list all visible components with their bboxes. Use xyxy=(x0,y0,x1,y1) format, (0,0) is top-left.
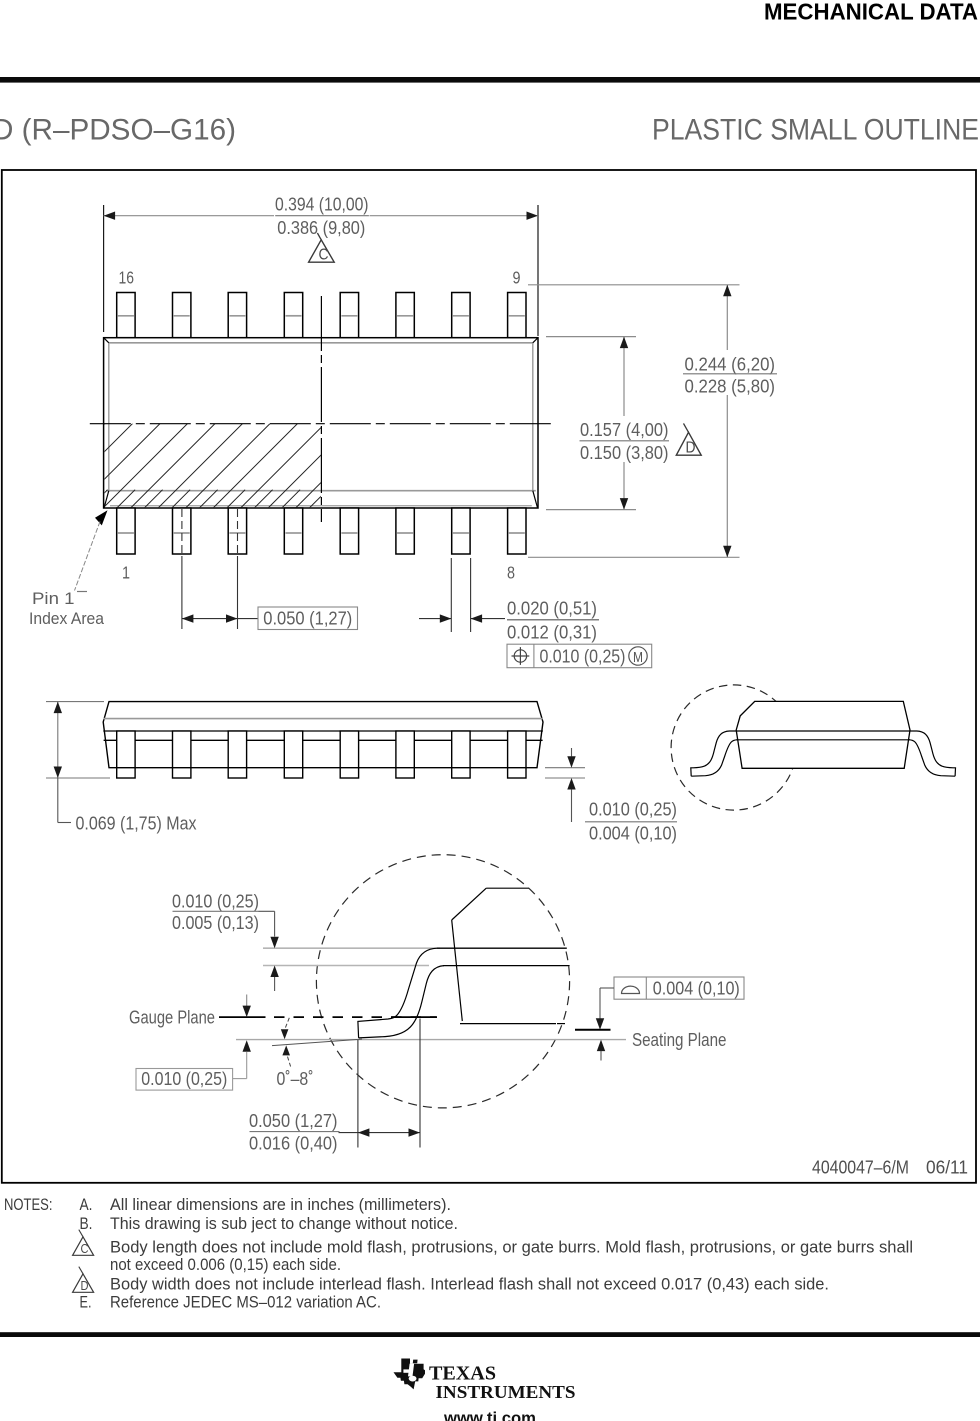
svg-text:Gauge Plane: Gauge Plane xyxy=(129,1007,215,1027)
svg-text:www.ti.com: www.ti.com xyxy=(443,1409,536,1421)
svg-text:A.: A. xyxy=(80,1196,93,1214)
svg-text:0.069 (1,75) Max: 0.069 (1,75) Max xyxy=(76,814,197,834)
svg-text:B.: B. xyxy=(80,1215,93,1233)
svg-text:0.005 (0,13): 0.005 (0,13) xyxy=(172,913,259,933)
svg-text:NOTES:: NOTES: xyxy=(4,1196,53,1214)
svg-text:06/11: 06/11 xyxy=(926,1157,968,1177)
svg-text:4040047–6/M: 4040047–6/M xyxy=(812,1157,909,1177)
svg-text:PLASTIC SMALL OUTLINE: PLASTIC SMALL OUTLINE xyxy=(652,114,979,147)
svg-text:Index Area: Index Area xyxy=(29,609,105,628)
svg-text:0.150 (3,80): 0.150 (3,80) xyxy=(580,443,669,463)
svg-text:0.050 (1,27): 0.050 (1,27) xyxy=(263,608,352,628)
svg-text:0.050 (1,27): 0.050 (1,27) xyxy=(249,1111,338,1131)
svg-text:0.010 (0,25): 0.010 (0,25) xyxy=(172,892,259,912)
svg-text:Seating Plane: Seating Plane xyxy=(632,1030,727,1050)
svg-text:D: D xyxy=(686,439,696,456)
svg-text:M: M xyxy=(633,650,643,666)
svg-text:0.394 (10,00): 0.394 (10,00) xyxy=(275,195,369,215)
svg-text:0.157 (4,00): 0.157 (4,00) xyxy=(580,420,669,440)
svg-text:Pin 1: Pin 1 xyxy=(32,589,75,608)
svg-text:0.228 (5,80): 0.228 (5,80) xyxy=(685,376,776,396)
svg-text:0.244 (6,20): 0.244 (6,20) xyxy=(685,354,776,374)
svg-text:0.010 (0,25): 0.010 (0,25) xyxy=(540,646,626,666)
svg-text:D: D xyxy=(81,1279,89,1293)
svg-text:8: 8 xyxy=(507,563,515,583)
svg-text:0.004 (0,10): 0.004 (0,10) xyxy=(653,978,740,998)
svg-text:E.: E. xyxy=(80,1293,92,1311)
svg-text:16: 16 xyxy=(119,267,135,287)
svg-text:0.020 (0,51): 0.020 (0,51) xyxy=(507,598,597,618)
svg-text:0.010 (0,25): 0.010 (0,25) xyxy=(589,800,677,820)
svg-text:0.004 (0,10): 0.004 (0,10) xyxy=(589,824,677,844)
svg-text:This drawing is sub ject t: This drawing is sub ject to change witho… xyxy=(110,1215,458,1233)
svg-text:Body width does not includ: Body width does not include interlead fl… xyxy=(110,1276,829,1294)
svg-text:0.386 (9,80): 0.386 (9,80) xyxy=(277,218,365,238)
svg-text:Body length does not inclu: Body length does not include mold flash,… xyxy=(110,1239,913,1257)
svg-text:0.012 (0,31): 0.012 (0,31) xyxy=(507,623,597,643)
svg-text:D (R–PDSO–G16): D (R–PDSO–G16) xyxy=(0,114,236,147)
svg-text:C: C xyxy=(319,246,329,263)
svg-text:0˚–8˚: 0˚–8˚ xyxy=(277,1069,314,1089)
svg-text:9: 9 xyxy=(513,267,521,287)
svg-text:1: 1 xyxy=(122,563,130,583)
svg-text:not exceed 0.006 (0,15) ea: not exceed 0.006 (0,15) each side. xyxy=(110,1256,341,1274)
svg-text:0.016 (0,40): 0.016 (0,40) xyxy=(249,1134,338,1154)
svg-text:All linear dimensions are: All linear dimensions are in inches (mil… xyxy=(110,1196,451,1214)
svg-text:C: C xyxy=(81,1242,89,1256)
svg-text:Reference JEDEC MS–012 vari: Reference JEDEC MS–012 variation AC. xyxy=(110,1293,381,1311)
svg-text:MECHANICAL DATA: MECHANICAL DATA xyxy=(764,0,978,25)
svg-text:0.010 (0,25): 0.010 (0,25) xyxy=(141,1069,227,1089)
svg-text:INSTRUMENTS: INSTRUMENTS xyxy=(436,1382,576,1402)
